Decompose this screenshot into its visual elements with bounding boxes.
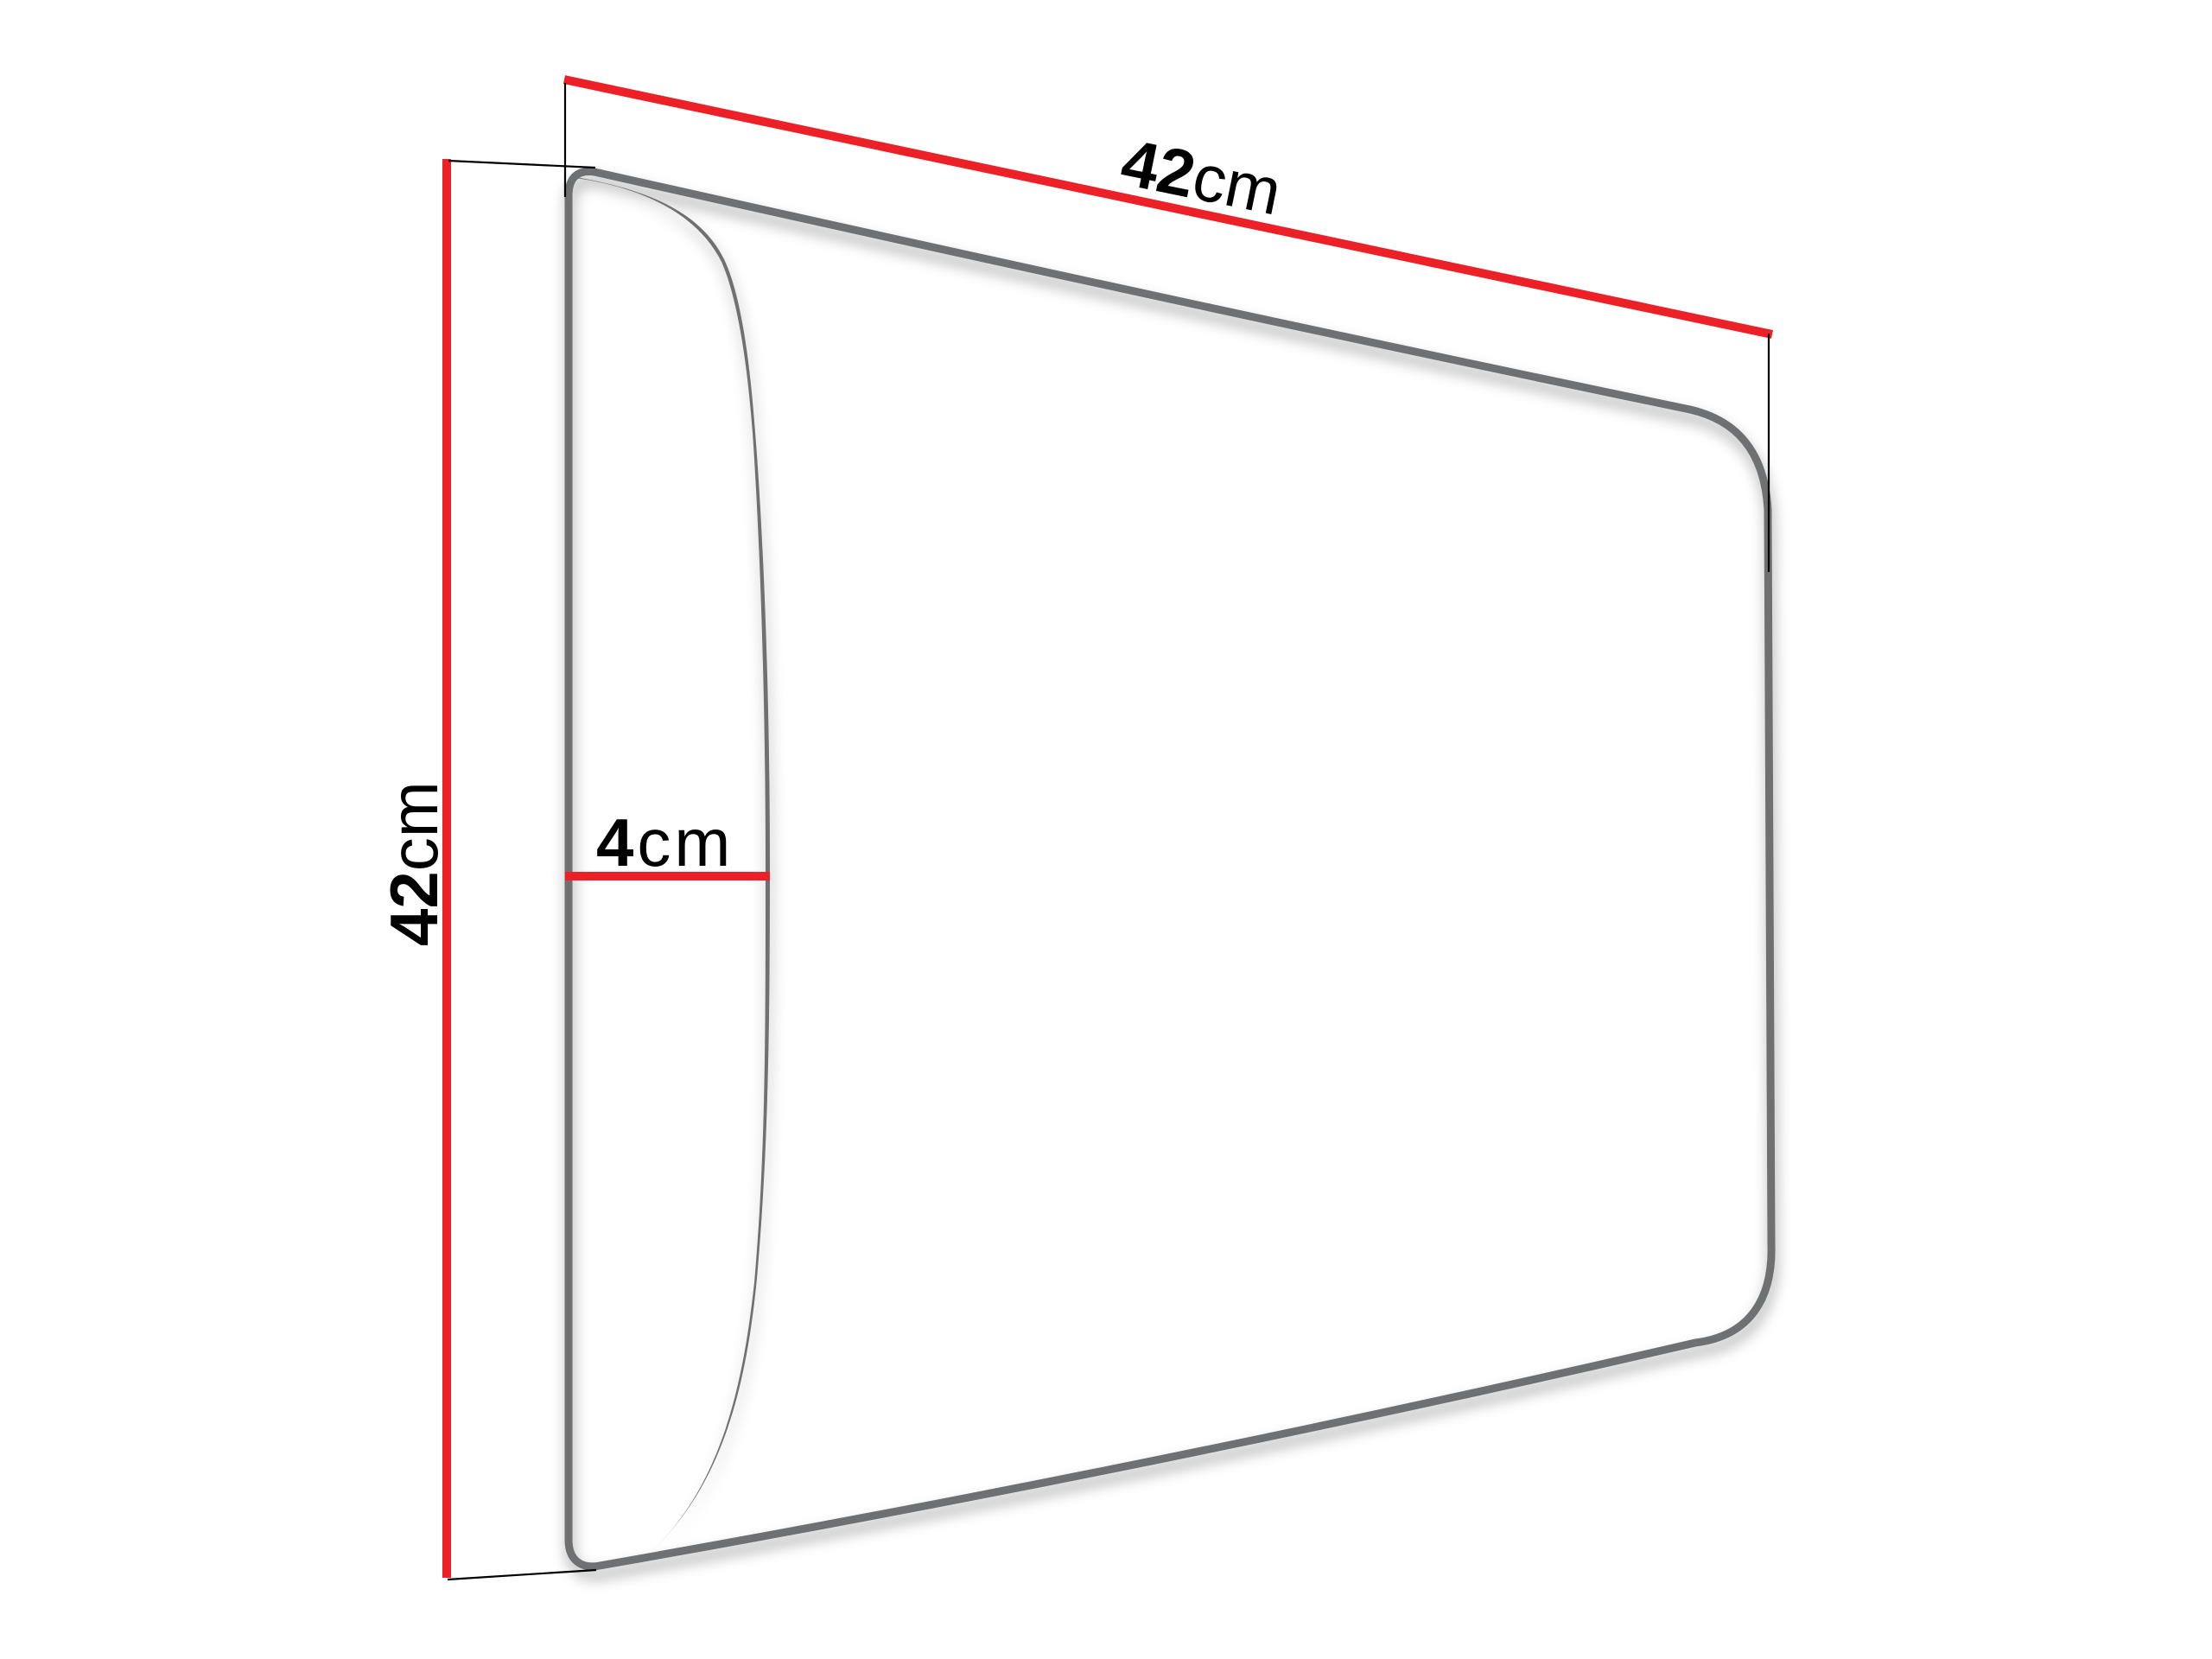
svg-text:4cm: 4cm (596, 804, 734, 880)
svg-text:42cm: 42cm (376, 781, 452, 946)
